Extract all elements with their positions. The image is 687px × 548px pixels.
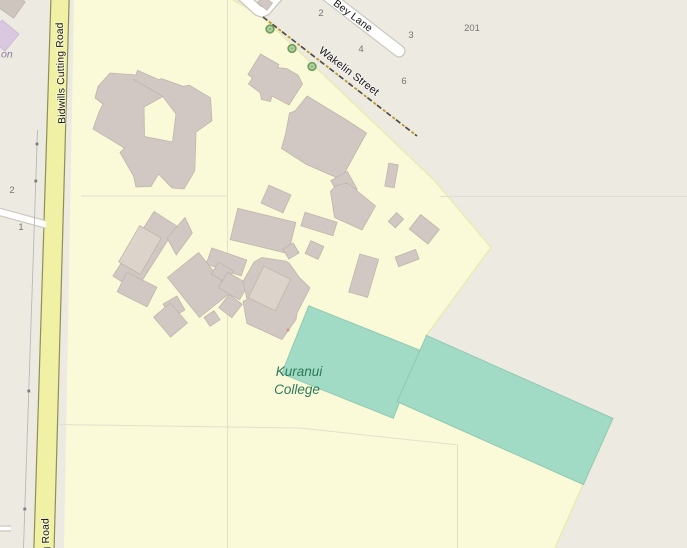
svg-text:6: 6 bbox=[401, 76, 406, 87]
svg-text:3: 3 bbox=[408, 30, 413, 41]
svg-text:4: 4 bbox=[358, 44, 363, 55]
svg-text:Kuranui: Kuranui bbox=[276, 364, 324, 379]
svg-text:1: 1 bbox=[18, 222, 23, 233]
svg-text:College: College bbox=[274, 382, 320, 397]
svg-text:2: 2 bbox=[9, 185, 14, 196]
svg-text:on: on bbox=[1, 49, 13, 61]
svg-text:201: 201 bbox=[464, 23, 480, 34]
svg-text:2: 2 bbox=[318, 8, 323, 19]
